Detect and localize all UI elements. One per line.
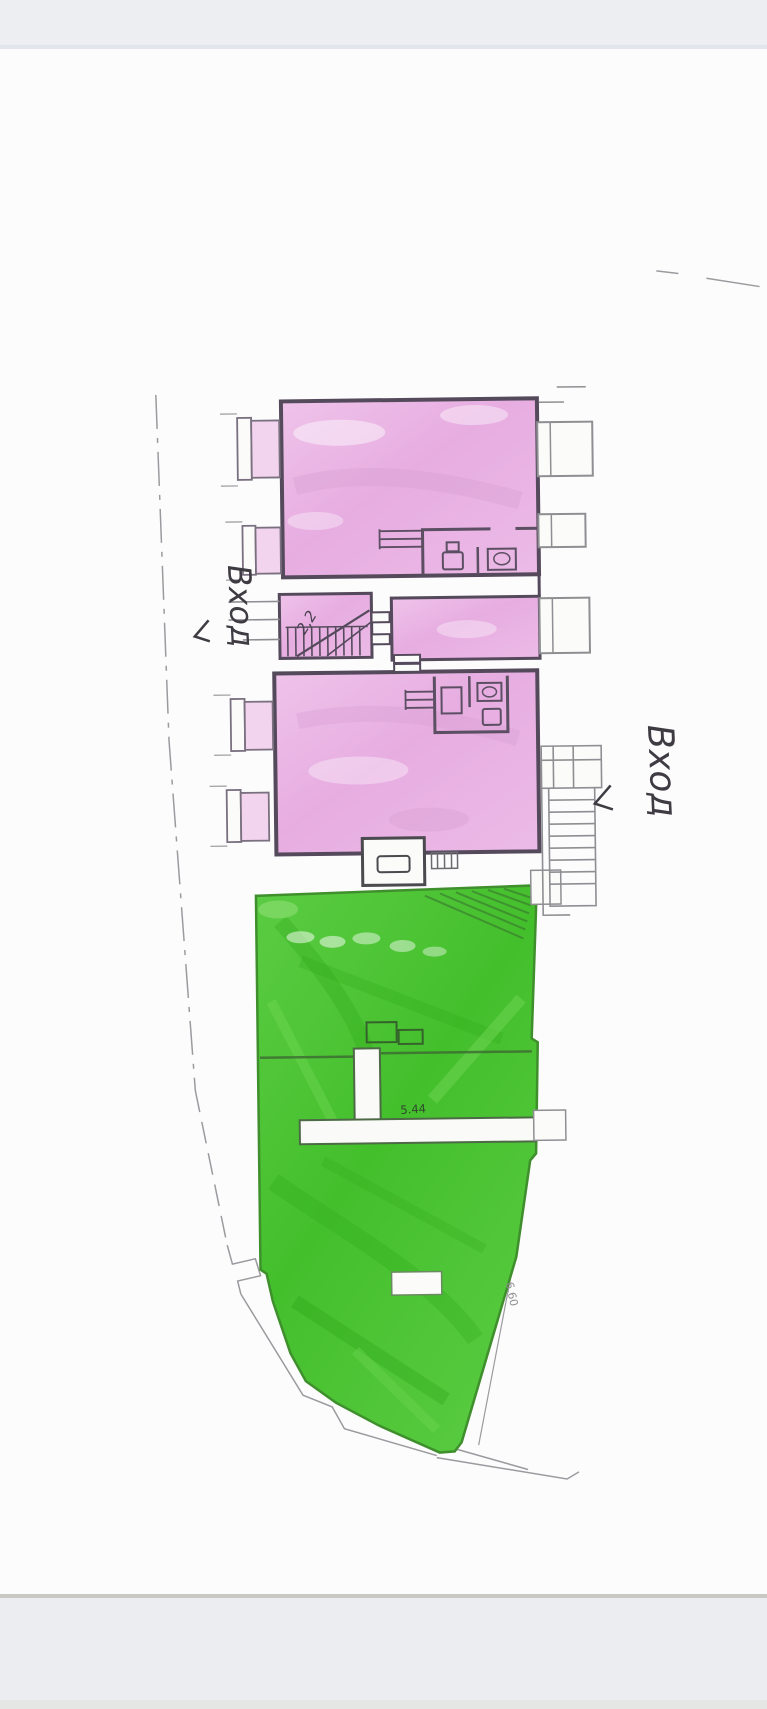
- photo-bottom-edge-line: [0, 1594, 767, 1598]
- green-vertical-corridor: [354, 1048, 381, 1123]
- green-horizontal-corridor: [300, 1117, 536, 1144]
- green-opening: [392, 1272, 442, 1296]
- photo-bottom-band-dark: [0, 1700, 767, 1709]
- entrance-label-right: Вход: [639, 723, 684, 818]
- floor-plan-drawing: Вход Вход 2,2 5.44 6.60: [0, 0, 767, 1709]
- photo-top-band-edge: [0, 45, 767, 49]
- photo-bottom-band: [0, 1598, 767, 1709]
- entrance-label-left: Вход: [220, 564, 262, 648]
- room-dimension-label: 5.44: [400, 1101, 426, 1117]
- green-right-box-top: [531, 870, 561, 904]
- green-inner-wall-left: [260, 1057, 354, 1058]
- right-bays: [537, 387, 595, 654]
- green-right-box-mid: [534, 1110, 566, 1140]
- scanned-floor-plan-photo: Вход Вход 2,2 5.44 6.60: [0, 0, 767, 1709]
- photo-top-band: [0, 0, 767, 45]
- corridor-room2-door: [394, 655, 420, 672]
